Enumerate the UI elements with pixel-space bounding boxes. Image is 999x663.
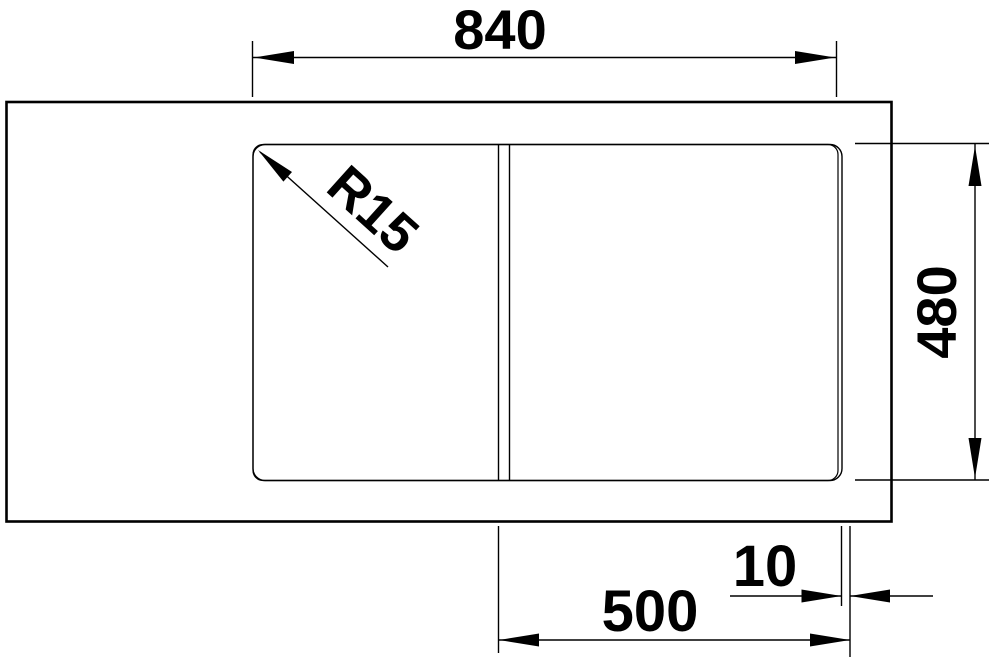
drawing-canvas: 840 480 500 [0,0,999,663]
sink-outer-contour [7,102,892,522]
radius-label-r15: R15 [316,154,430,265]
dimension-10-bottom-right: 10 [730,526,933,606]
radius-annotation-r15: R15 [258,150,430,267]
arrowhead-left-icon [254,51,294,64]
arrowhead-inward-left-icon [850,590,890,603]
dimension-label-840: 840 [453,0,546,61]
arrowhead-bottom-icon [969,438,982,478]
arrowhead-right-icon [795,51,835,64]
arrowhead-right-icon [810,634,850,647]
dimension-500-bottom: 500 [499,526,851,657]
dimension-label-480: 480 [905,265,968,358]
sink-dimension-drawing: 840 480 500 [0,0,999,663]
arrowhead-left-icon [499,634,539,647]
arrowhead-inward-right-icon [802,590,842,603]
dimension-label-10: 10 [733,534,798,599]
arrowhead-corner-icon [258,150,292,182]
dimension-840-top: 840 [253,0,837,97]
part-contours [7,102,892,522]
dimension-480-right: 480 [855,144,989,481]
dimension-label-500: 500 [602,579,699,644]
arrowhead-top-icon [969,146,982,186]
